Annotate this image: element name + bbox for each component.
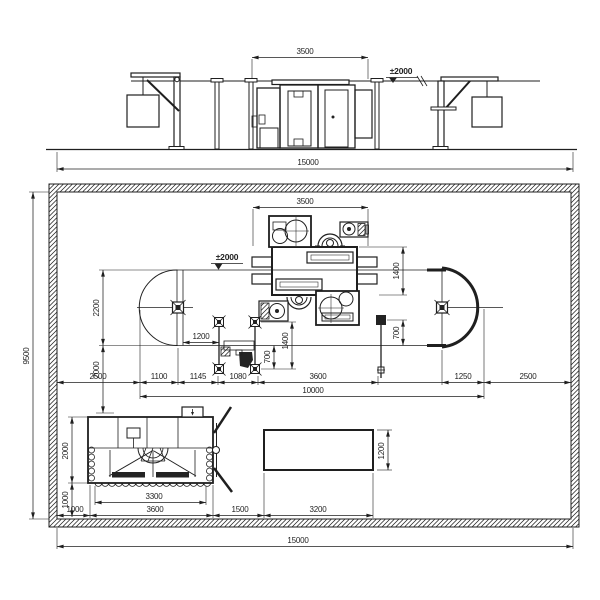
conveyor-bar	[112, 472, 145, 478]
plan-view: 3500 ±2000 1400 700 1400 700 120	[22, 184, 579, 549]
dim-label-3300: 3300	[146, 492, 164, 501]
dim-label-2500-right: 2500	[520, 372, 538, 381]
tank-outline	[88, 417, 213, 483]
hanging-cabinet-right	[472, 97, 502, 127]
track-left-anchor	[171, 300, 186, 315]
dim-label-3500-plan: 3500	[297, 197, 315, 206]
dim-700-right: 700	[387, 320, 407, 346]
datum-symbol-plan: ±2000	[211, 252, 243, 270]
machine-plan	[252, 216, 377, 325]
dim-9500: 9500	[22, 192, 49, 519]
dim-label-1500: 1500	[232, 505, 250, 514]
dim-label-3600-tank: 3600	[147, 505, 165, 514]
pump-unit-top-left	[269, 216, 311, 247]
dim-15000-elevation: 15000	[57, 152, 573, 172]
dim-label-1400-right: 1400	[392, 262, 401, 280]
datum-label-elev: ±2000	[390, 66, 413, 76]
dim-1400-right: 1400	[359, 247, 407, 295]
pump-unit-bottom-right	[316, 291, 359, 325]
dim-label-2500-left: 2500	[90, 372, 108, 381]
roller-chain-left	[89, 447, 95, 481]
conveyor-bar	[156, 472, 189, 478]
dim-700-mid: 700	[263, 346, 274, 370]
dim-label-700-right: 700	[392, 326, 401, 339]
dim-label-1200-pit: 1200	[377, 442, 386, 460]
datum-triangle-icon	[389, 78, 397, 84]
post-block	[376, 315, 386, 325]
roller-chain-right	[207, 447, 213, 481]
layout-drawing: 3500 ±2000 15000	[0, 0, 600, 600]
tank-detail	[88, 407, 232, 492]
hanging-cabinet-left	[127, 95, 159, 127]
right-gantry-pillar	[431, 77, 502, 150]
post-anchor	[249, 363, 262, 376]
dim-3500-elevation: 3500	[252, 47, 368, 79]
datum-triangle-icon	[215, 264, 223, 270]
left-gantry-pillar	[127, 73, 184, 150]
motor-unit-top-right	[340, 222, 369, 237]
post-anchor	[213, 316, 226, 329]
datum-label-plan: ±2000	[216, 252, 239, 262]
track-right-anchor	[435, 300, 450, 315]
tank-side-arm	[213, 407, 233, 492]
dim-label-700-mid: 700	[263, 350, 272, 363]
rotary-arcs-bottom	[287, 297, 311, 310]
dim-label-2000-tank: 2000	[61, 442, 70, 460]
machine-roof	[272, 80, 349, 85]
dim-label-3600-mid: 3600	[310, 372, 328, 381]
drawing-canvas: 3500 ±2000 15000	[0, 0, 600, 600]
dim-label-10000: 10000	[302, 386, 324, 395]
post-anchor	[213, 363, 226, 376]
motor-unit-bottom-left	[259, 301, 288, 321]
elevation-view: 3500 ±2000 15000	[46, 47, 577, 172]
post-cross-marker	[377, 366, 385, 374]
dim-label-1080: 1080	[230, 372, 248, 381]
machine-elevation	[252, 80, 372, 148]
dim-label-2200: 2200	[92, 299, 101, 317]
dim-label-1250: 1250	[455, 372, 473, 381]
dim-label-1100: 1100	[151, 372, 168, 381]
dim-15000-plan: 15000	[57, 528, 573, 549]
dim-label-3200: 3200	[310, 505, 328, 514]
dim-label-1000-offset: 1000	[67, 505, 85, 514]
machine-body	[272, 247, 357, 295]
pit-rectangle	[264, 430, 373, 470]
dim-label-1200: 1200	[193, 332, 211, 341]
dim-label-3500-elev: 3500	[297, 47, 315, 56]
dim-label-9500: 9500	[22, 347, 31, 365]
hatched-base-plate	[221, 347, 230, 356]
post-anchor	[249, 316, 262, 329]
dim-label-15000-plan: 15000	[287, 536, 309, 545]
dim-label-1400-mid: 1400	[281, 332, 290, 350]
dim-1200: 1200	[183, 332, 219, 343]
dim-label-1145: 1145	[190, 372, 207, 381]
dim-label-15000-elev: 15000	[297, 158, 319, 167]
dim-chain-row: 2500 1100 1145 1080 3600 1250 2500 10000	[57, 309, 571, 399]
track-support-posts	[213, 315, 387, 378]
datum-symbol-elevation: ±2000	[386, 66, 418, 83]
